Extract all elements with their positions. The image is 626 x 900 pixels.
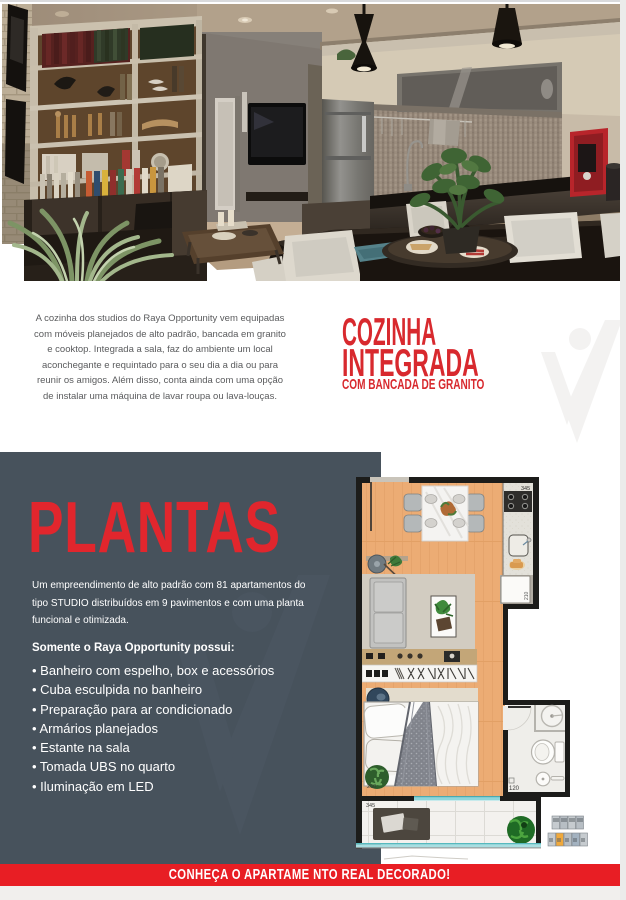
svg-text:345: 345 — [366, 803, 375, 809]
svg-text:210: 210 — [524, 591, 530, 600]
svg-text:345: 345 — [521, 486, 530, 492]
svg-text:260: 260 — [367, 784, 376, 790]
svg-text:120: 120 — [509, 786, 520, 792]
